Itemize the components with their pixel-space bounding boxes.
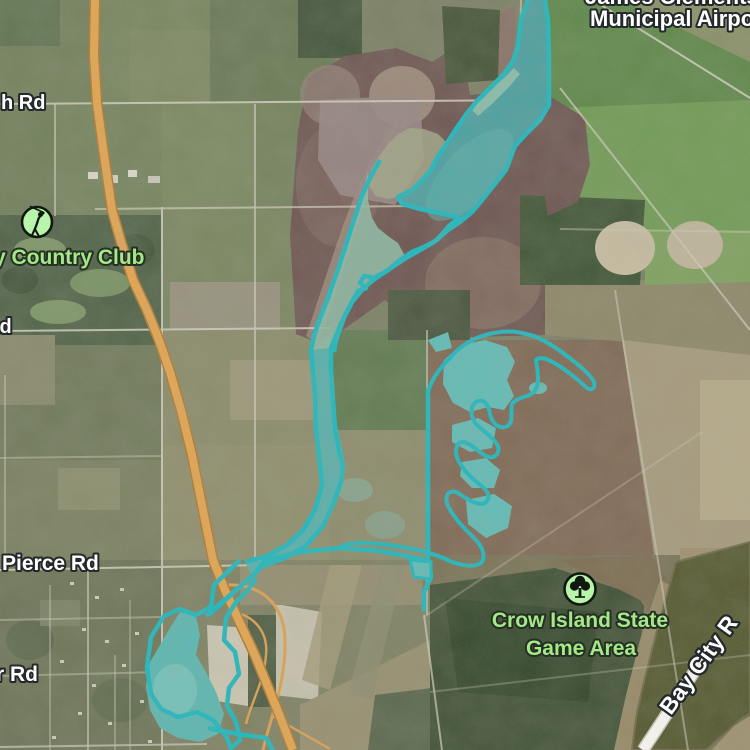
svg-text:Game Area: Game Area [526,637,636,660]
svg-text:Crow Island State: Crow Island State [492,609,668,632]
svg-text:Pierce Rd: Pierce Rd [2,552,99,575]
svg-text:r Rd: r Rd [0,663,38,686]
svg-text:Rd: Rd [0,316,12,338]
svg-text:Municipal Airport: Municipal Airport [590,6,750,31]
svg-text:y Country Club: y Country Club [0,246,145,269]
svg-text:h Rd: h Rd [1,92,45,114]
